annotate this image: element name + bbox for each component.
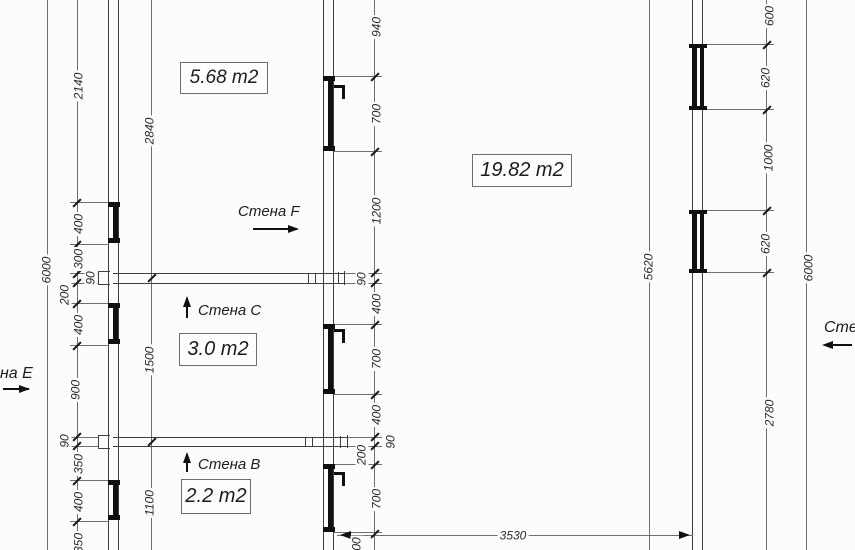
dimension-tick	[762, 105, 771, 114]
window-sash	[328, 468, 333, 528]
wall-label-text: Стена B	[198, 456, 260, 473]
extension-line	[348, 437, 382, 438]
wall-1-junction	[98, 284, 110, 285]
dimension-label: 2780	[764, 398, 777, 429]
dimension-label: 400	[371, 292, 384, 316]
dimension-label: 90	[85, 269, 98, 286]
dimension-label: 00	[351, 535, 364, 550]
dimension-tick	[370, 72, 379, 81]
wall-f-label: Стена F	[238, 203, 300, 220]
dimension-label: 2140	[73, 71, 86, 102]
wall-2-jamb	[305, 437, 306, 447]
wall-2-junction	[98, 448, 110, 449]
dimension-label: 620	[760, 66, 773, 90]
wall-f-arrow-icon	[288, 225, 299, 233]
dimension-label: 350	[73, 452, 86, 476]
dimension-tick	[147, 273, 156, 282]
window-sash	[113, 307, 118, 340]
wall-right-arrow-icon	[822, 341, 833, 349]
dimension-tick	[370, 320, 379, 329]
wall-label-text: Стена F	[238, 203, 300, 220]
dimension-label: 940	[371, 15, 384, 39]
wall-1-line	[113, 273, 345, 274]
extension-line	[703, 44, 774, 45]
room-area-box: 19.82 m2	[472, 154, 572, 187]
wall-b-arrow-icon	[183, 452, 191, 463]
room-area-label: 19.82 m2	[480, 159, 563, 182]
wall-2-end-cap	[340, 436, 341, 448]
room-area-label: 3.0 m2	[187, 338, 248, 361]
dimension-label: 1200	[371, 196, 384, 227]
wall-2-junction	[98, 435, 110, 436]
wall-label-partial-right: Сте	[824, 319, 855, 337]
wall-1-line	[113, 283, 345, 284]
wall-left-inner-line	[118, 0, 119, 550]
wall-1-jamb	[308, 273, 309, 284]
dimension-label: 6000	[41, 255, 54, 286]
dimension-tick	[370, 460, 379, 469]
dimension-label: 200	[59, 283, 72, 307]
wall-label-text: Сте	[824, 319, 855, 336]
dimension-tick	[370, 147, 379, 156]
window-sash	[700, 48, 704, 106]
wall-label-text: Стена C	[198, 302, 261, 319]
window-handle	[342, 472, 345, 486]
dimension-tick	[762, 206, 771, 215]
wall-e-arrow-icon	[19, 385, 30, 393]
dimension-tick	[370, 390, 379, 399]
dimension-label: 700	[371, 487, 384, 511]
dimension-label: 90	[356, 270, 369, 287]
dimension-label: 1000	[763, 143, 776, 174]
window-sash	[113, 206, 118, 239]
room-area-label: 5.68 m2	[190, 67, 259, 89]
room-area-box: 3.0 m2	[179, 333, 257, 366]
window-sash	[700, 214, 704, 269]
window-handle	[342, 85, 345, 99]
room-area-label: 2.2 m2	[185, 485, 246, 508]
floor-plan-drawing: 2140284060004003009020040090090350400350…	[0, 0, 855, 550]
dimension-label: 1100	[144, 488, 157, 518]
wall-b-label: Стена B	[198, 456, 260, 473]
window-cap	[689, 269, 707, 273]
wall-label-text: на Е	[0, 365, 33, 382]
wall-c-arrow-icon	[183, 296, 191, 307]
dim-3530-arrow-icon	[679, 531, 690, 539]
wall-c-label: Стена C	[198, 302, 261, 319]
dimension-tick	[762, 268, 771, 277]
dimension-label: 2840	[144, 116, 157, 147]
window-handle	[342, 329, 345, 343]
window-cap	[689, 106, 707, 110]
wall-1-end-cap	[338, 272, 339, 284]
dimension-label: 6000	[803, 253, 816, 284]
dimension-label: 900	[70, 378, 83, 402]
dimension-label: 90	[59, 432, 72, 449]
room-area-box: 5.68 m2	[180, 62, 268, 94]
dimension-label: 1500	[144, 345, 157, 376]
dimension-label: 200	[356, 443, 369, 467]
wall-1-junction	[98, 271, 110, 272]
window-sash	[328, 80, 333, 147]
dimension-label: 300	[73, 247, 86, 271]
dimension-label: 400	[73, 212, 86, 236]
room-area-box: 2.2 m2	[181, 479, 251, 514]
wall-2-junction	[98, 435, 99, 449]
dimension-label: 400	[73, 490, 86, 514]
dimension-label: 5620	[643, 252, 656, 283]
wall-left-outer-line	[108, 0, 109, 550]
window-sash	[113, 484, 118, 516]
dimension-tick	[762, 40, 771, 49]
dimension-label: 600	[764, 4, 777, 28]
dimension-label: 400	[371, 403, 384, 427]
dimension-label: 90	[385, 433, 398, 450]
window-sash	[692, 214, 697, 269]
extension-line	[703, 210, 774, 211]
window-sash	[328, 328, 333, 390]
dimension-label: 700	[371, 347, 384, 371]
wall-e-label-partial: на Е	[0, 365, 33, 383]
extension-line	[703, 272, 774, 273]
window-sash	[692, 48, 697, 106]
wall-1-jamb	[315, 273, 316, 284]
extension-line	[703, 109, 774, 110]
dimension-label: 400	[73, 313, 86, 337]
dimension-tick	[370, 529, 379, 538]
wall-1-junction	[98, 271, 99, 285]
wall-2-jamb	[312, 437, 313, 447]
dimension-label: 3530	[498, 530, 529, 543]
dimension-label: 350	[73, 531, 86, 550]
dimension-label: 700	[371, 102, 384, 126]
dimension-label: 620	[760, 232, 773, 256]
